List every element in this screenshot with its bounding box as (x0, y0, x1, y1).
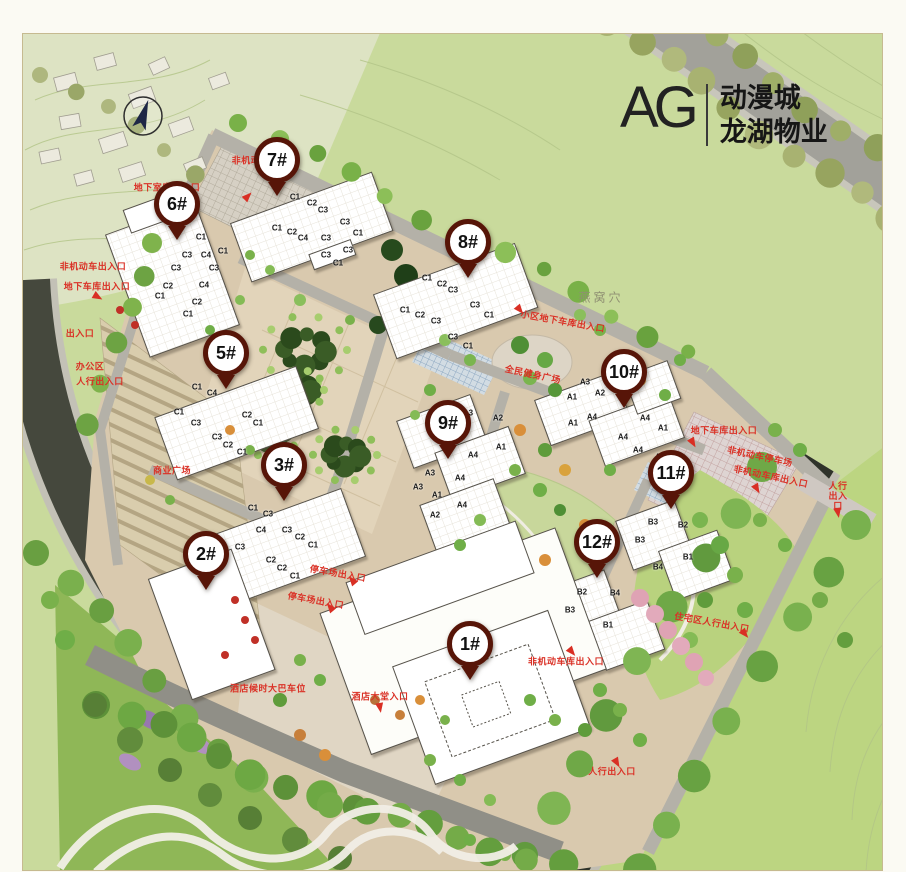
unit-label: C3 (182, 251, 192, 260)
unit-label: C3 (235, 543, 245, 552)
logo-divider (706, 84, 708, 146)
unit-label: B4 (610, 589, 620, 598)
unit-label: C3 (212, 433, 222, 442)
unit-label: C1 (484, 311, 494, 320)
unit-label: B3 (565, 606, 575, 615)
building-pin: 2# (183, 531, 229, 577)
annotation-label: 办公区 (76, 360, 105, 373)
building-pin: 10# (601, 349, 647, 395)
entrance-arrow-icon (92, 291, 105, 303)
unit-label: B3 (635, 536, 645, 545)
unit-label: C3 (470, 301, 480, 310)
building-pin: 6# (154, 181, 200, 227)
building-pin: 3# (261, 442, 307, 488)
entrance-arrow-icon (687, 437, 699, 450)
unit-label: C2 (287, 228, 297, 237)
unit-label: C2 (266, 556, 276, 565)
label-overlay: AG 动漫城 龙湖物业 C1C1C3C4C3C3C2C4C1C2C1C1C2C3… (0, 0, 906, 872)
annotation-label: 非机动车库出入口 (732, 462, 809, 491)
building-pin: 12# (574, 519, 620, 565)
unit-label: C1 (248, 504, 258, 513)
unit-label: C1 (218, 247, 228, 256)
unit-label: A2 (493, 414, 503, 423)
unit-label: C3 (340, 218, 350, 227)
unit-label: C4 (199, 281, 209, 290)
unit-label: A4 (468, 451, 478, 460)
unit-label: C2 (163, 282, 173, 291)
unit-label: C1 (308, 541, 318, 550)
unit-label: C1 (400, 306, 410, 315)
unit-label: C4 (298, 234, 308, 243)
annotation-label: 非机动车出入口 (60, 260, 127, 273)
unit-label: C1 (353, 229, 363, 238)
unit-label: A1 (567, 393, 577, 402)
annotation-label: 全民健身广场 (504, 362, 562, 387)
unit-label: C1 (422, 274, 432, 283)
unit-label: C1 (333, 259, 343, 268)
unit-label: A4 (587, 413, 597, 422)
unit-label: C1 (272, 224, 282, 233)
unit-label: C3 (448, 333, 458, 342)
unit-label: C3 (431, 317, 441, 326)
annotation-label: 出入口 (66, 327, 95, 340)
entrance-arrow-icon (739, 628, 752, 641)
unit-label: A1 (658, 424, 668, 433)
building-pin: 9# (425, 400, 471, 446)
annotation-label: 酒店候时大巴车位 (230, 682, 306, 695)
unit-label: B2 (678, 521, 688, 530)
entrance-arrow-icon (751, 483, 763, 496)
unit-label: C1 (290, 572, 300, 581)
unit-label: B1 (603, 621, 613, 630)
unit-label: C2 (437, 280, 447, 289)
unit-label: C2 (242, 411, 252, 420)
building-pin: 11# (648, 450, 694, 496)
unit-label: C3 (321, 251, 331, 260)
unit-label: C2 (192, 298, 202, 307)
unit-label: C1 (196, 233, 206, 242)
building-pin: 1# (447, 621, 493, 667)
project-title: 动漫城 (720, 82, 828, 114)
unit-label: C1 (290, 193, 300, 202)
unit-label: A3 (425, 469, 435, 478)
logo: AG 动漫城 龙湖物业 (620, 80, 828, 149)
unit-label: A1 (568, 419, 578, 428)
unit-label: C3 (318, 206, 328, 215)
unit-label: C1 (237, 448, 247, 457)
unit-label: C3 (282, 526, 292, 535)
property-brand: 龙湖物业 (720, 116, 828, 148)
unit-label: A3 (413, 483, 423, 492)
unit-label: A1 (496, 443, 506, 452)
unit-label: B1 (683, 553, 693, 562)
unit-label: C2 (307, 199, 317, 208)
entrance-arrow-icon (242, 190, 255, 203)
unit-label: B2 (577, 588, 587, 597)
unit-label: A4 (455, 474, 465, 483)
entrance-arrow-icon (375, 702, 385, 713)
logo-mark: AG (620, 80, 694, 135)
unit-label: A4 (633, 446, 643, 455)
unit-label: C3 (171, 264, 181, 273)
unit-label: C1 (183, 310, 193, 319)
building-pin: 7# (254, 137, 300, 183)
unit-label: C3 (448, 286, 458, 295)
unit-label: C1 (155, 292, 165, 301)
unit-label: A4 (618, 433, 628, 442)
unit-label: C3 (209, 264, 219, 273)
unit-label: C1 (174, 408, 184, 417)
unit-label: C2 (277, 564, 287, 573)
site-plan-page: AG 动漫城 龙湖物业 C1C1C3C4C3C3C2C4C1C2C1C1C2C3… (0, 0, 906, 872)
unit-label: C3 (321, 234, 331, 243)
unit-label: C2 (415, 311, 425, 320)
unit-label: C3 (263, 510, 273, 519)
unit-label: A4 (457, 501, 467, 510)
area-label: 燕窝穴 (578, 289, 623, 306)
unit-label: A2 (595, 389, 605, 398)
unit-label: B4 (653, 563, 663, 572)
entrance-arrow-icon (833, 507, 843, 518)
unit-label: A3 (580, 378, 590, 387)
annotation-label: 地下车库出入口 (691, 424, 758, 437)
annotation-label: 商业广场 (153, 464, 191, 477)
unit-label: C1 (192, 383, 202, 392)
unit-label: C1 (463, 342, 473, 351)
annotation-label: 地下车库出入口 (64, 280, 131, 293)
unit-label: C3 (191, 419, 201, 428)
unit-label: A2 (430, 511, 440, 520)
unit-label: C1 (253, 419, 263, 428)
unit-label: C4 (256, 526, 266, 535)
unit-label: C4 (207, 389, 217, 398)
annotation-label: 非机动车库出入口 (528, 655, 604, 668)
unit-label: C4 (201, 251, 211, 260)
annotation-label: 酒店大堂入口 (351, 690, 408, 703)
unit-label: C2 (223, 441, 233, 450)
annotation-label: 人行出入口 (588, 765, 636, 778)
building-pin: 8# (445, 219, 491, 265)
annotation-label: 小区地下车库出入口 (520, 307, 606, 335)
unit-label: A4 (640, 414, 650, 423)
unit-label: C2 (295, 533, 305, 542)
unit-label: A1 (432, 491, 442, 500)
unit-label: B3 (648, 518, 658, 527)
unit-label: C3 (343, 246, 353, 255)
annotation-label: 人行出入口 (76, 375, 124, 388)
building-pin: 5# (203, 330, 249, 376)
